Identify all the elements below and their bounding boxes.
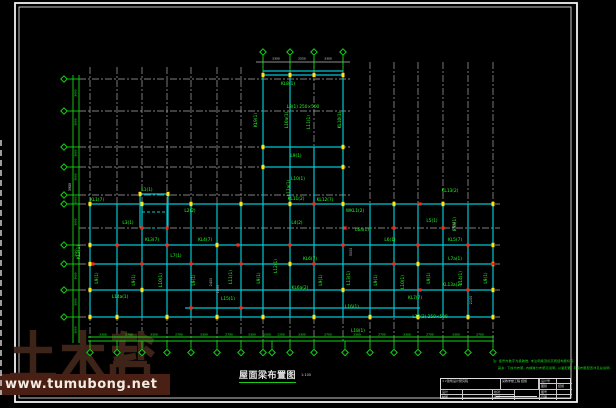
axis-bubble-diamond xyxy=(465,349,471,355)
axis-bubble-diamond xyxy=(340,49,346,55)
beam-label: L9(1) xyxy=(426,272,432,284)
beam-label: L12a(1) xyxy=(286,179,292,196)
left-edge-artifact xyxy=(0,140,2,395)
beam-label: KL12(7) xyxy=(317,197,334,203)
yellow-column-marker xyxy=(262,315,265,319)
beam-label: L12(1) xyxy=(273,259,279,273)
red-column-marker xyxy=(343,226,346,229)
beam-label: 2100 xyxy=(469,296,473,305)
beam-label: L5(1) xyxy=(426,218,438,224)
beam-label: KL5(7) xyxy=(448,237,462,243)
beam-label: L17(3) 250×500 xyxy=(412,314,448,320)
yellow-column-marker xyxy=(289,73,292,77)
beam-label: 3000 xyxy=(349,248,353,257)
axis-bubble-diamond xyxy=(311,49,317,55)
axis-bubble-diamond xyxy=(342,349,348,355)
axis-bubble-diamond xyxy=(391,349,397,355)
title-block-value-date xyxy=(557,395,572,400)
bottom-dim-text: 2700 xyxy=(225,333,233,337)
beam-label: L2(2) xyxy=(184,208,196,214)
yellow-column-marker xyxy=(166,315,169,319)
bottom-dim-text: 3300 xyxy=(200,333,208,337)
bottom-dim-text: 3300 xyxy=(248,333,256,337)
axis-bubble-diamond xyxy=(188,349,194,355)
beam-label: L9(1) xyxy=(373,274,379,286)
beam-label: L10(1) xyxy=(291,176,305,182)
axis-bubble-diamond xyxy=(61,201,67,207)
axis-bubble-diamond xyxy=(61,192,67,198)
title-block-sign-cell xyxy=(463,395,493,400)
yellow-column-marker xyxy=(442,202,445,206)
beam-label: KL3(7) xyxy=(145,237,159,243)
drawing-title: 屋面梁布置图 xyxy=(239,368,296,383)
red-column-marker xyxy=(189,306,192,309)
yellow-column-marker xyxy=(89,243,92,247)
beam-label: 3300 xyxy=(272,57,280,61)
yellow-column-marker xyxy=(89,288,92,292)
axis-bubble-diamond xyxy=(238,349,244,355)
left-dim-text: 3000 xyxy=(74,218,78,225)
beam-label: KL13a(2) xyxy=(442,282,462,288)
beam-label: L6(1) xyxy=(384,237,396,243)
yellow-column-marker xyxy=(492,315,495,319)
beam-label: KL6a(2) xyxy=(292,285,309,291)
red-column-marker xyxy=(392,226,395,229)
axis-bubble-diamond xyxy=(61,287,67,293)
axis-bubble-diamond xyxy=(287,349,293,355)
axis-bubble-diamond xyxy=(164,349,170,355)
yellow-column-marker xyxy=(190,202,193,206)
bottom-dim-text: 3300 xyxy=(150,333,158,337)
axis-bubble-diamond xyxy=(440,349,446,355)
yellow-column-marker xyxy=(342,202,345,206)
beam-label: 1800 xyxy=(452,222,456,231)
yellow-column-marker xyxy=(342,145,345,149)
bottom-dim-text: 2700 xyxy=(324,333,332,337)
yellow-column-marker xyxy=(342,288,345,292)
red-column-marker xyxy=(288,243,291,246)
watermark-logo-stroke xyxy=(144,348,153,355)
yellow-column-marker xyxy=(393,202,396,206)
beam-label: L7a(1) xyxy=(448,256,462,262)
left-dim-text: 3600 xyxy=(74,249,78,256)
yellow-column-marker xyxy=(467,315,470,319)
axis-bubble-diamond xyxy=(61,144,67,150)
watermark-url: www.tumubong.net xyxy=(0,374,170,395)
yellow-column-marker xyxy=(116,315,119,319)
red-column-marker xyxy=(418,288,421,291)
yellow-column-marker xyxy=(240,202,243,206)
drawing-scale: 1:100 xyxy=(301,373,311,377)
red-column-marker xyxy=(441,226,444,229)
watermark-logo-stroke xyxy=(114,356,136,360)
bottom-dim-text: 2700 xyxy=(125,333,133,337)
bottom-dim-text: 2700 xyxy=(175,333,183,337)
yellow-column-marker xyxy=(216,243,219,247)
yellow-column-marker xyxy=(262,73,265,77)
yellow-column-marker xyxy=(313,73,316,77)
axis-bubble-diamond xyxy=(415,349,421,355)
beam-label: KL1(7) xyxy=(90,197,104,203)
yellow-column-marker xyxy=(289,202,292,206)
beam-label: KL13(2) xyxy=(442,188,459,194)
cad-screenshot: KL8(1)L8(1) 250×500L9(1)L10(1)KL11(2)KL9… xyxy=(0,0,616,408)
beam-label: 1500 xyxy=(216,285,220,294)
bottom-dim-text: 1500 xyxy=(263,333,271,337)
yellow-column-marker xyxy=(492,288,495,292)
title-block-label-date: 日期 xyxy=(539,395,557,400)
axis-bubble-diamond xyxy=(269,349,275,355)
cad-canvas: KL8(1)L8(1) 250×500L9(1)L10(1)KL11(2)KL9… xyxy=(0,0,616,408)
beam-label: L9(1) xyxy=(290,153,302,159)
beam-label: L1(1) xyxy=(141,187,153,193)
red-column-marker xyxy=(239,306,242,309)
beam-label: L13(1) xyxy=(346,271,352,285)
yellow-column-marker xyxy=(89,315,92,319)
title-block-project: 某教学楼工程 结施 xyxy=(501,379,539,390)
yellow-column-marker xyxy=(89,262,92,266)
axis-bubble-diamond xyxy=(61,164,67,170)
yellow-column-marker xyxy=(492,202,495,206)
red-column-marker xyxy=(491,262,494,265)
axis-bubble-diamond xyxy=(61,242,67,248)
beam-label: KL4(7) xyxy=(198,237,212,243)
axis-bubble-diamond xyxy=(311,349,317,355)
yellow-column-marker xyxy=(342,165,345,169)
yellow-column-marker xyxy=(262,145,265,149)
left-dim-text: 3000 xyxy=(74,173,78,180)
axis-bubble-diamond xyxy=(287,49,293,55)
beam-label: L9(1) xyxy=(318,274,324,286)
yellow-column-marker xyxy=(289,262,292,266)
notes-line2: 其余: 下柱均布筋, 内横跨分布筋见说明, 以梁配筋, 平面布筋配置详见总说明. xyxy=(498,365,611,370)
beam-label: KL9(1) xyxy=(253,113,259,127)
title-block-sign-draw: 制图 xyxy=(441,395,463,400)
yellow-column-marker xyxy=(369,315,372,319)
beam-label: KL10(1) xyxy=(337,111,343,128)
beam-label: L10(1) xyxy=(400,275,406,289)
beam-label: 2400 xyxy=(209,278,213,287)
beam-label: L9(1) xyxy=(256,272,262,284)
bottom-dim-text: 3300 xyxy=(99,333,107,337)
beam-label: L4(2) xyxy=(291,220,303,226)
axis-bubble-diamond xyxy=(490,349,496,355)
left-dim-text: 3600 xyxy=(74,89,78,96)
beam-label: L8(1) 250×500 xyxy=(287,104,320,110)
left-dim-text: 3000 xyxy=(74,272,78,279)
bottom-dim-text: 3300 xyxy=(403,333,411,337)
red-column-marker xyxy=(91,262,94,265)
beam-label: L16(1) xyxy=(345,304,359,310)
red-column-marker xyxy=(165,243,168,246)
bottom-dim-text: 2700 xyxy=(426,333,434,337)
yellow-column-marker xyxy=(492,243,495,247)
yellow-column-marker xyxy=(141,202,144,206)
beam-label: WKL1(2) xyxy=(346,208,365,214)
axis-bubble-diamond xyxy=(367,349,373,355)
yellow-column-marker xyxy=(167,192,170,196)
red-column-marker xyxy=(416,243,419,246)
red-column-marker xyxy=(312,202,315,205)
red-column-marker xyxy=(140,226,143,229)
bottom-dim-text: 2700 xyxy=(378,333,386,337)
red-column-marker xyxy=(115,243,118,246)
red-column-marker xyxy=(341,243,344,246)
beam-label: 3300 xyxy=(324,57,332,61)
beam-label: L3(1) xyxy=(122,220,134,226)
red-column-marker xyxy=(165,226,168,229)
beam-label: L10(1) xyxy=(158,273,164,287)
red-column-marker xyxy=(392,262,395,265)
beam-label: L10a(1) xyxy=(284,111,290,128)
beam-label: L9(1) xyxy=(191,274,197,286)
beam-label: 3900 xyxy=(68,183,72,191)
bottom-dim-text: 3300 xyxy=(298,333,306,337)
bottom-dim-text: 3300 xyxy=(353,333,361,337)
beam-label: L15(1) xyxy=(221,296,235,302)
red-column-marker xyxy=(312,262,315,265)
bottom-dim-text: 3300 xyxy=(452,333,460,337)
title-block: ××建筑设计研究院 某教学楼工程 结施 设计 校对 制图 审核 设计号 图别 结… xyxy=(440,378,571,399)
red-column-marker xyxy=(189,262,192,265)
title-block-company: ××建筑设计研究院 xyxy=(441,379,501,390)
beam-label: L9(1) xyxy=(483,272,489,284)
yellow-column-marker xyxy=(342,73,345,77)
yellow-column-marker xyxy=(216,315,219,319)
layer-green: KL8(1)L8(1) 250×500L9(1)L10(1)KL11(2)KL9… xyxy=(61,49,496,356)
red-column-marker xyxy=(239,262,242,265)
axis-bubble-diamond xyxy=(214,349,220,355)
beam-label: L14a(1) xyxy=(112,294,129,300)
title-block-signature-line xyxy=(496,396,537,397)
axis-bubble-diamond xyxy=(260,349,266,355)
left-dim-text: 3600 xyxy=(74,298,78,305)
red-column-marker xyxy=(418,202,421,205)
yellow-column-marker xyxy=(262,165,265,169)
axis-bubble-diamond xyxy=(61,314,67,320)
beam-label: KL6(7) xyxy=(303,256,317,262)
red-column-marker xyxy=(140,262,143,265)
yellow-column-marker xyxy=(141,288,144,292)
beam-label: KL8(1) xyxy=(281,81,295,87)
bottom-dim-text: 2700 xyxy=(476,333,484,337)
bottom-dim-text: 1200 xyxy=(277,333,285,337)
left-dim-text: 3000 xyxy=(74,326,78,333)
beam-label: L6a(1) xyxy=(355,227,369,233)
beam-label: L11(1) xyxy=(228,270,234,284)
left-dim-text: 3600 xyxy=(74,196,78,203)
beam-label: L7(1) xyxy=(170,253,182,259)
beam-label: 2550 xyxy=(298,57,306,61)
red-column-marker xyxy=(236,243,239,246)
yellow-column-marker xyxy=(417,262,420,266)
axis-bubble-diamond xyxy=(61,76,67,82)
beam-label: L9(1) xyxy=(94,272,100,284)
left-dim-text: 3000 xyxy=(74,118,78,125)
axis-bubble-diamond xyxy=(61,261,67,267)
red-column-marker xyxy=(466,288,469,291)
beam-label: L11(1) xyxy=(306,115,312,129)
yellow-column-marker xyxy=(313,315,316,319)
red-column-marker xyxy=(466,243,469,246)
beam-label: L9(1) xyxy=(131,274,137,286)
axis-bubble-diamond xyxy=(61,108,67,114)
notes-line1: 注: 括号内数字为梁跨数, 未注明梁顶标高同结构层标高. xyxy=(493,358,575,363)
left-dim-text: 3600 xyxy=(74,149,78,156)
beam-label: KL7(7) xyxy=(408,295,422,301)
axis-bubble-diamond xyxy=(260,49,266,55)
